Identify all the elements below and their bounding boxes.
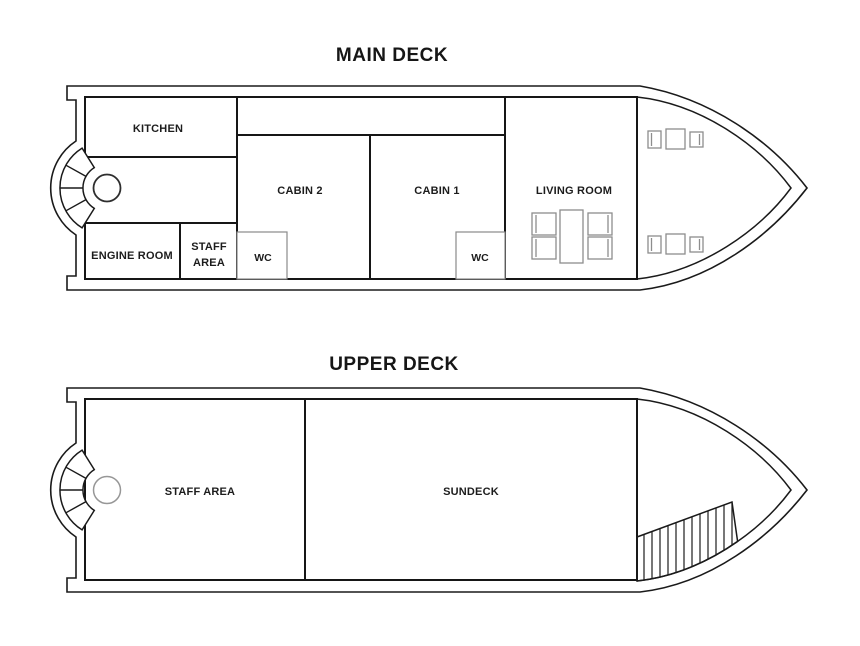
wc-cabin2-label: WC: [254, 252, 272, 264]
wc-cabin1-label: WC: [471, 252, 489, 264]
main-deck: KITCHEN ENGINE ROOM STAFF AREA CABIN 2 C…: [51, 86, 807, 290]
cabin2-label: CABIN 2: [277, 185, 322, 197]
dining-table: [560, 210, 583, 263]
boat-deck-plan: MAIN DECK: [0, 0, 860, 646]
sundeck-label: SUNDECK: [443, 486, 499, 498]
upper-deck-title: UPPER DECK: [329, 354, 459, 375]
bow-table: [666, 129, 685, 149]
bow-chair: [690, 237, 703, 252]
stern-table-circle: [94, 175, 121, 202]
upper-stern-table-circle: [94, 477, 121, 504]
engine-room-label: ENGINE ROOM: [91, 250, 173, 262]
bow-chair: [648, 131, 661, 148]
dining-set: [532, 210, 612, 263]
kitchen-label: KITCHEN: [133, 123, 183, 135]
bow-chair: [690, 132, 703, 147]
deck-plan-canvas: MAIN DECK: [0, 0, 860, 646]
cabin1-label: CABIN 1: [414, 185, 459, 197]
staff-area-label-line1: STAFF: [191, 241, 227, 253]
staff-area-label-line2: AREA: [193, 257, 225, 269]
main-deck-title: MAIN DECK: [336, 45, 448, 66]
bow-chair: [648, 236, 661, 253]
upper-staff-area-label: STAFF AREA: [165, 486, 235, 498]
upper-deck: STAFF AREA SUNDECK: [51, 388, 807, 592]
living-room-label: LIVING ROOM: [536, 185, 612, 197]
bow-table: [666, 234, 685, 254]
